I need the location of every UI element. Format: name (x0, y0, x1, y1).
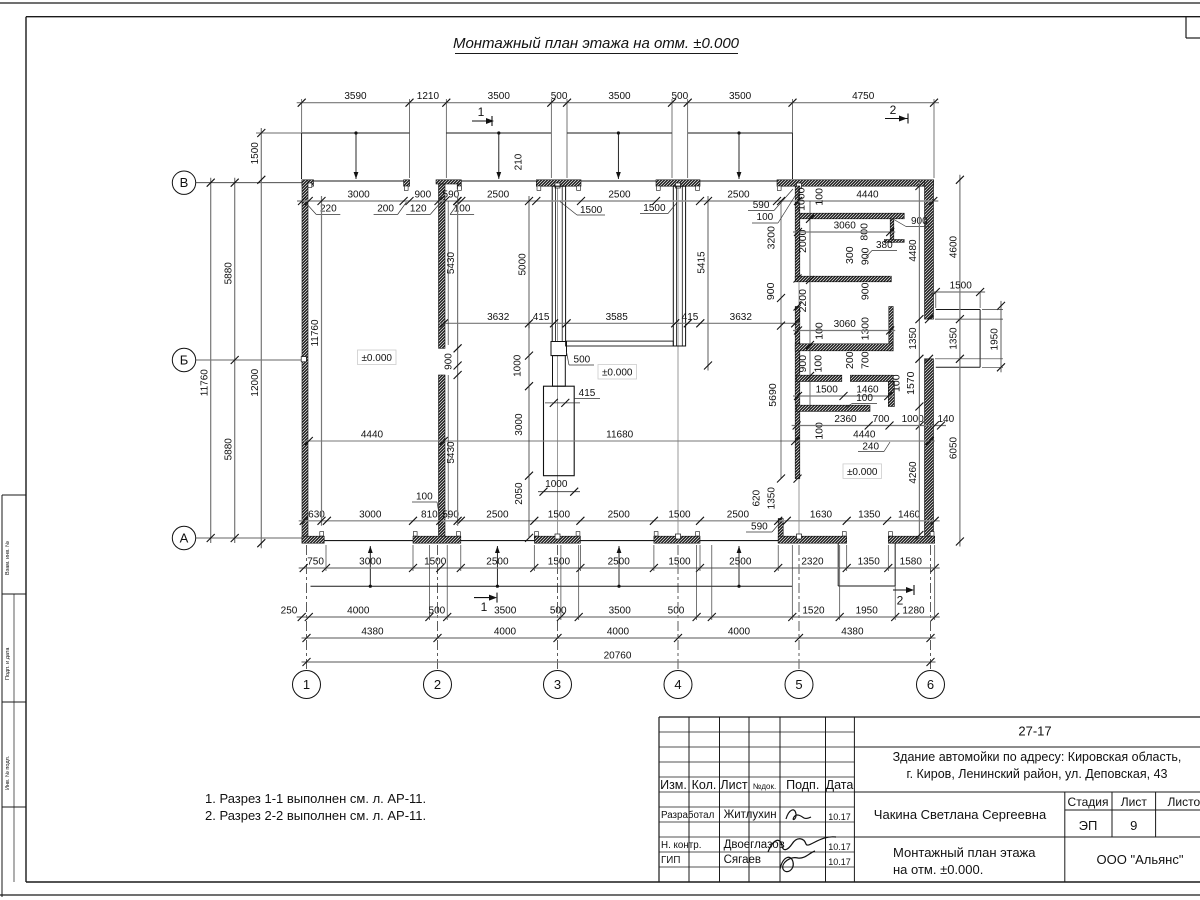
svg-text:1500: 1500 (424, 557, 447, 568)
svg-text:500: 500 (551, 91, 568, 102)
svg-text:2500: 2500 (727, 190, 750, 201)
svg-text:900: 900 (860, 247, 872, 265)
svg-text:1500: 1500 (548, 509, 571, 520)
svg-text:1500: 1500 (250, 142, 261, 165)
svg-text:4750: 4750 (852, 91, 875, 102)
svg-text:200: 200 (377, 204, 394, 215)
svg-text:1000: 1000 (545, 479, 568, 490)
svg-text:100: 100 (812, 355, 824, 373)
svg-text:210: 210 (514, 153, 525, 170)
svg-text:2500: 2500 (727, 509, 750, 520)
svg-text:Подп.: Подп. (786, 778, 819, 792)
svg-text:1: 1 (478, 105, 485, 119)
svg-text:4260: 4260 (908, 461, 919, 484)
svg-text:500: 500 (668, 606, 685, 617)
svg-text:3590: 3590 (344, 91, 367, 102)
svg-text:11680: 11680 (606, 430, 634, 441)
svg-text:4440: 4440 (853, 430, 876, 441)
svg-text:3500: 3500 (494, 606, 517, 617)
svg-text:3500: 3500 (488, 91, 511, 102)
svg-text:2500: 2500 (608, 557, 631, 568)
svg-text:Здание автомойки по адресу: Ки: Здание автомойки по адресу: Кировская об… (893, 750, 1182, 764)
svg-text:10.17: 10.17 (828, 812, 851, 822)
svg-text:Дата: Дата (826, 778, 854, 792)
svg-text:Чакина Светлана Сергеевна: Чакина Светлана Сергеевна (874, 807, 1047, 822)
svg-text:2050: 2050 (514, 482, 525, 505)
svg-text:5415: 5415 (697, 251, 708, 274)
svg-text:1500: 1500 (816, 385, 839, 396)
svg-text:1350: 1350 (908, 327, 919, 350)
svg-text:3632: 3632 (730, 312, 753, 323)
svg-text:3060: 3060 (834, 221, 857, 232)
svg-text:250: 250 (281, 606, 298, 617)
svg-text:900: 900 (860, 282, 872, 300)
svg-text:1: 1 (303, 677, 310, 692)
svg-text:3: 3 (554, 677, 561, 692)
svg-text:500: 500 (550, 606, 567, 617)
svg-text:±0.000: ±0.000 (602, 368, 633, 379)
svg-text:4: 4 (674, 677, 681, 692)
svg-text:1520: 1520 (802, 606, 825, 617)
svg-text:900: 900 (797, 355, 809, 373)
svg-text:1500: 1500 (668, 509, 691, 520)
svg-text:12000: 12000 (250, 368, 261, 396)
svg-text:590: 590 (753, 200, 770, 211)
svg-text:1000: 1000 (902, 414, 925, 425)
svg-text:3000: 3000 (347, 190, 370, 201)
svg-text:4600: 4600 (949, 235, 960, 258)
svg-text:1350: 1350 (858, 557, 881, 568)
svg-text:2: 2 (434, 677, 441, 692)
svg-text:1950: 1950 (990, 328, 1001, 351)
svg-text:380: 380 (876, 240, 893, 251)
svg-text:3632: 3632 (487, 312, 510, 323)
svg-text:2500: 2500 (487, 190, 510, 201)
svg-text:4000: 4000 (607, 627, 630, 638)
svg-text:1950: 1950 (856, 606, 879, 617)
svg-text:3500: 3500 (609, 606, 632, 617)
svg-text:100: 100 (814, 188, 826, 206)
svg-text:3585: 3585 (606, 312, 629, 323)
svg-text:2320: 2320 (801, 557, 824, 568)
svg-text:2500: 2500 (608, 509, 631, 520)
svg-text:3000: 3000 (514, 413, 525, 436)
svg-text:100: 100 (416, 491, 433, 502)
svg-text:Лист: Лист (720, 778, 747, 792)
svg-text:5430: 5430 (446, 251, 457, 274)
svg-text:900: 900 (414, 190, 431, 201)
svg-text:1350: 1350 (767, 487, 778, 510)
svg-text:20760: 20760 (604, 651, 632, 662)
svg-text:3500: 3500 (729, 91, 752, 102)
svg-text:10.17: 10.17 (828, 842, 851, 852)
svg-text:4000: 4000 (347, 606, 370, 617)
svg-text:630: 630 (308, 509, 325, 520)
svg-text:2500: 2500 (608, 190, 631, 201)
svg-text:1300: 1300 (860, 317, 872, 341)
svg-text:200: 200 (844, 351, 856, 369)
svg-text:5690: 5690 (767, 383, 779, 407)
svg-text:Изм.: Изм. (660, 778, 687, 792)
svg-text:г. Киров, Ленинский район, ул.: г. Киров, Ленинский район, ул. Деповская… (907, 767, 1168, 781)
svg-text:700: 700 (873, 414, 890, 425)
svg-text:Монтажный план этажа: Монтажный план этажа (893, 845, 1036, 860)
svg-text:1. Разрез 1-1 выполнен см. л.: 1. Разрез 1-1 выполнен см. л. АР-11. (205, 791, 426, 806)
svg-text:3200: 3200 (766, 226, 778, 250)
svg-text:2500: 2500 (729, 557, 752, 568)
svg-text:№док.: №док. (753, 782, 776, 791)
svg-text:3000: 3000 (359, 557, 382, 568)
svg-text:Н. контр.: Н. контр. (661, 840, 701, 851)
svg-text:ЭП: ЭП (1079, 818, 1098, 833)
svg-text:100: 100 (890, 374, 902, 392)
svg-text:590: 590 (442, 509, 459, 520)
svg-text:А: А (180, 531, 189, 546)
svg-text:9: 9 (1130, 818, 1137, 833)
svg-text:Житлухин: Житлухин (724, 809, 777, 821)
svg-text:120: 120 (410, 204, 427, 215)
svg-text:11760: 11760 (199, 369, 210, 397)
svg-text:4380: 4380 (361, 627, 384, 638)
svg-text:Лист: Лист (1121, 795, 1148, 809)
svg-text:на отм. ±0.000.: на отм. ±0.000. (893, 862, 983, 877)
svg-text:1000: 1000 (796, 187, 808, 211)
svg-text:±0.000: ±0.000 (361, 353, 392, 364)
svg-text:5430: 5430 (446, 441, 457, 464)
svg-text:2000: 2000 (797, 229, 809, 253)
svg-text:500: 500 (429, 606, 446, 617)
svg-text:590: 590 (751, 522, 768, 533)
svg-text:1210: 1210 (417, 91, 440, 102)
svg-text:Б: Б (180, 353, 189, 368)
svg-text:1280: 1280 (902, 606, 925, 617)
svg-text:ГИП: ГИП (661, 855, 680, 866)
svg-text:Сягаев: Сягаев (724, 854, 761, 866)
svg-text:3060: 3060 (834, 319, 857, 330)
svg-text:900: 900 (443, 353, 454, 370)
svg-text:ООО "Альянс": ООО "Альянс" (1097, 852, 1184, 867)
svg-text:1350: 1350 (949, 327, 960, 350)
svg-text:4380: 4380 (841, 627, 864, 638)
svg-text:100: 100 (757, 212, 774, 223)
svg-text:27-17: 27-17 (1018, 724, 1051, 739)
svg-text:4000: 4000 (494, 627, 517, 638)
svg-text:100: 100 (856, 393, 873, 404)
svg-text:500: 500 (671, 91, 688, 102)
svg-text:3500: 3500 (608, 91, 631, 102)
svg-text:1460: 1460 (898, 509, 921, 520)
svg-text:1500: 1500 (580, 205, 603, 216)
svg-text:100: 100 (813, 422, 825, 440)
svg-text:2: 2 (890, 103, 897, 117)
svg-text:10.17: 10.17 (828, 857, 851, 867)
svg-text:Кол.: Кол. (692, 778, 717, 792)
svg-text:В: В (180, 175, 189, 190)
svg-text:240: 240 (862, 441, 879, 452)
svg-text:1350: 1350 (858, 509, 881, 520)
svg-text:Листов: Листов (1168, 795, 1200, 809)
svg-text:1570: 1570 (905, 371, 917, 395)
svg-text:11760: 11760 (310, 319, 321, 347)
svg-text:Разработал: Разработал (661, 810, 715, 821)
svg-text:6: 6 (927, 677, 934, 692)
svg-text:4440: 4440 (361, 430, 384, 441)
svg-text:4000: 4000 (728, 627, 751, 638)
svg-text:1580: 1580 (900, 557, 923, 568)
svg-text:1000: 1000 (513, 354, 524, 377)
svg-text:Стадия: Стадия (1068, 795, 1109, 809)
svg-text:4480: 4480 (908, 239, 919, 262)
svg-text:2500: 2500 (486, 509, 509, 520)
svg-text:300: 300 (844, 246, 856, 264)
svg-text:900: 900 (765, 282, 777, 300)
svg-text:220: 220 (320, 204, 337, 215)
svg-text:5880: 5880 (223, 438, 234, 461)
svg-text:2: 2 (897, 594, 904, 608)
svg-text:Взам. инв. №: Взам. инв. № (5, 541, 11, 575)
svg-text:500: 500 (574, 355, 591, 366)
svg-text:±0.000: ±0.000 (847, 467, 878, 478)
svg-text:620: 620 (751, 489, 762, 506)
svg-text:5880: 5880 (223, 262, 234, 285)
svg-text:1: 1 (481, 600, 488, 614)
svg-text:750: 750 (307, 557, 324, 568)
svg-text:Монтажный план этажа на отм. ±: Монтажный план этажа на отм. ±0.000 (453, 35, 740, 52)
svg-text:140: 140 (937, 414, 954, 425)
svg-text:2360: 2360 (834, 414, 857, 425)
svg-text:1500: 1500 (950, 281, 973, 292)
svg-text:5000: 5000 (518, 253, 529, 276)
svg-text:2200: 2200 (797, 289, 809, 313)
svg-text:700: 700 (860, 351, 872, 369)
svg-text:2. Разрез 2-2 выполнен см. л.: 2. Разрез 2-2 выполнен см. л. АР-11. (205, 808, 426, 823)
svg-text:415: 415 (579, 388, 596, 399)
svg-text:2500: 2500 (486, 557, 509, 568)
svg-text:1500: 1500 (668, 557, 691, 568)
svg-text:1500: 1500 (643, 203, 666, 214)
svg-text:1630: 1630 (810, 509, 833, 520)
svg-text:6050: 6050 (949, 436, 960, 459)
svg-text:810: 810 (421, 509, 438, 520)
svg-text:415: 415 (533, 312, 550, 323)
svg-text:415: 415 (682, 312, 699, 323)
svg-text:1500: 1500 (548, 557, 571, 568)
svg-text:5: 5 (795, 677, 802, 692)
svg-text:4440: 4440 (856, 190, 879, 201)
svg-text:Инв. № подл.: Инв. № подл. (5, 755, 11, 790)
svg-text:Подп. и дата: Подп. и дата (5, 647, 11, 680)
svg-text:3000: 3000 (359, 509, 382, 520)
